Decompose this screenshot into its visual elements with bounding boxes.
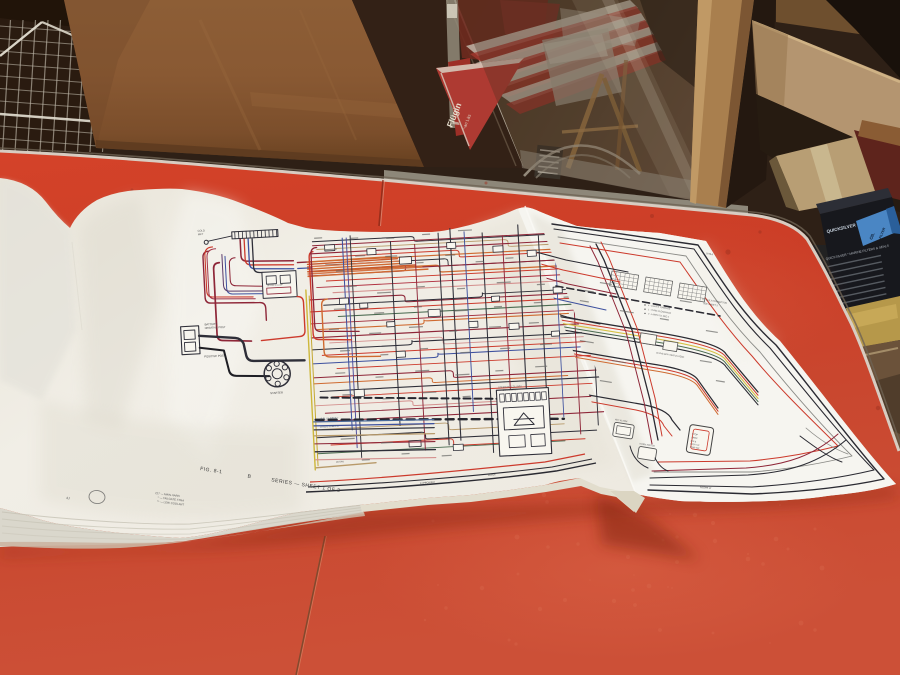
svg-text:STARTER: STARTER — [270, 390, 283, 395]
svg-text:MKT: MKT — [198, 232, 204, 236]
svg-text:18 TAN: 18 TAN — [336, 460, 344, 463]
